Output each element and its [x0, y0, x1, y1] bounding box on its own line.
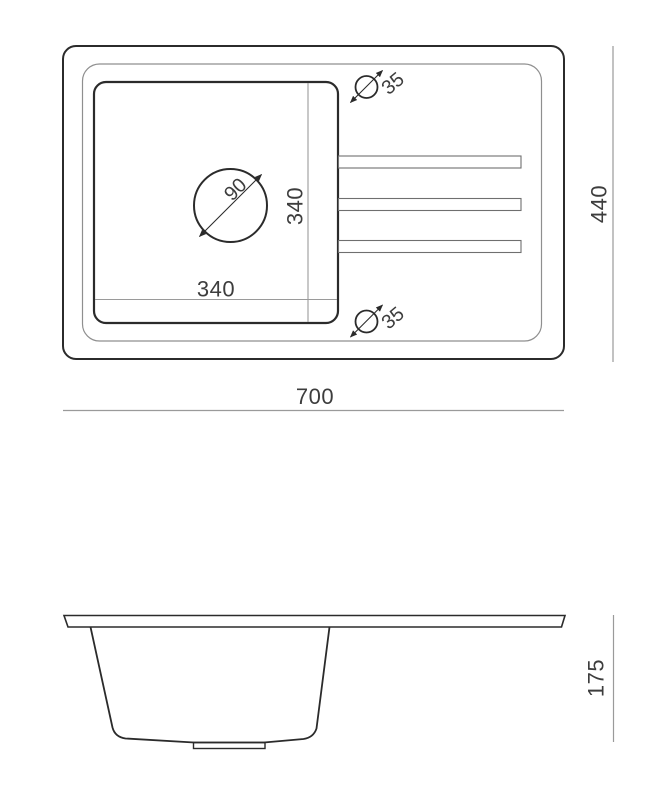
top-view: 35 35 90 340 340 700 [63, 46, 613, 411]
bowl-width-label: 340 [197, 277, 235, 302]
drainer-groove-1 [339, 156, 522, 168]
overall-depth-label: 440 [587, 185, 612, 223]
tap-hole-top-dimension-label: 35 [378, 68, 409, 99]
technical-drawing-canvas: 35 35 90 340 340 700 [0, 0, 645, 800]
bowl-depth-label: 340 [283, 187, 308, 225]
drainer-groove-3 [339, 241, 522, 253]
sink-technical-drawing: 35 35 90 340 340 700 [0, 0, 645, 800]
drain-fitting-profile [194, 743, 266, 749]
overall-width-dimension: 700 [63, 384, 564, 411]
tap-hole-bottom: 35 [351, 303, 409, 337]
tap-hole-top: 35 [351, 68, 409, 102]
drainer-groove-2 [339, 199, 522, 211]
bowl-section-profile [91, 627, 330, 743]
bowl-depth-dimension: 175 [584, 615, 614, 742]
side-bowl-depth-label: 175 [584, 659, 609, 697]
tap-hole-bottom-dimension-label: 35 [378, 303, 409, 334]
overall-width-label: 700 [296, 384, 334, 409]
drain-hole: 90 [194, 169, 267, 242]
drain-diameter-label: 90 [220, 174, 251, 205]
side-view: 175 [64, 615, 614, 749]
overall-depth-dimension: 440 [587, 46, 614, 362]
rim-profile [64, 616, 565, 628]
